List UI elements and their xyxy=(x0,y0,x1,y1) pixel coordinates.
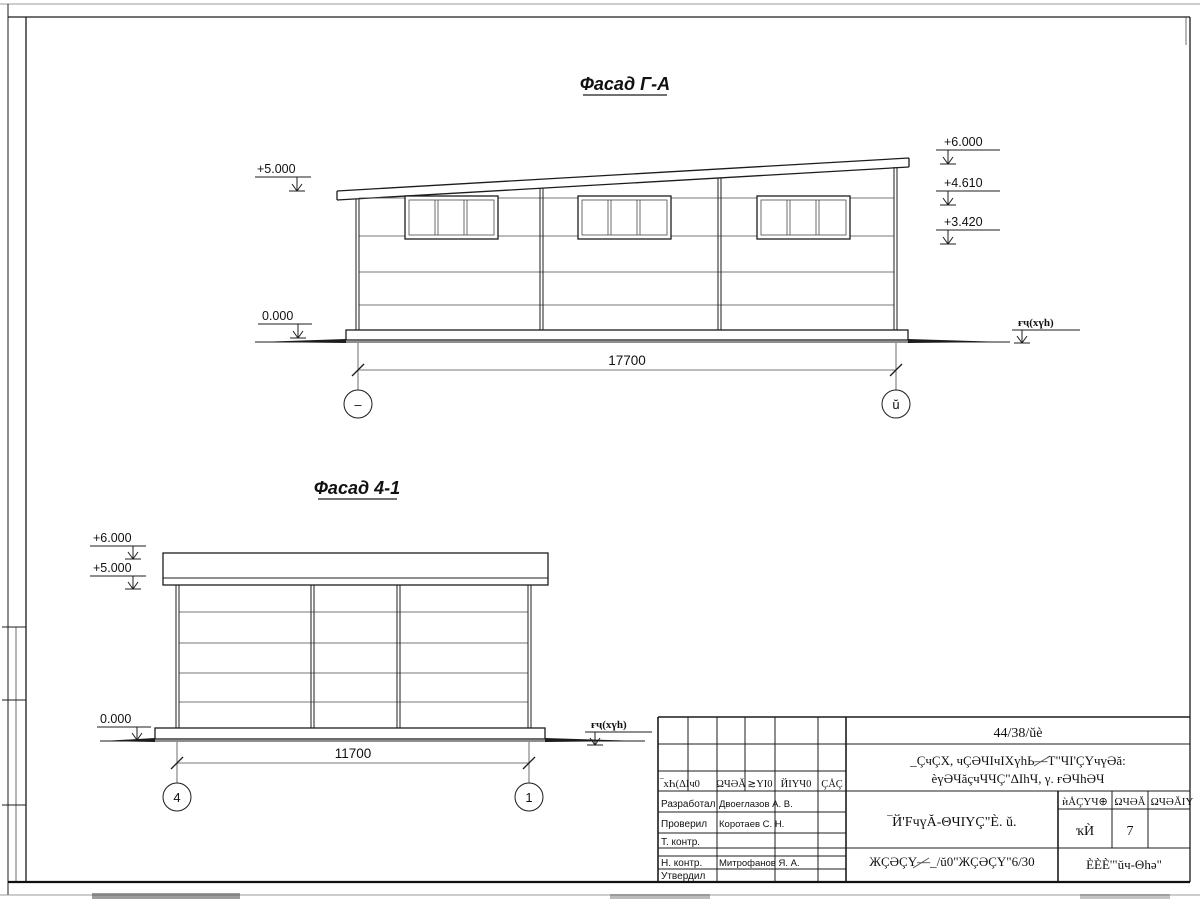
ground-level-mark: ғҷ(хүһ) xyxy=(1012,317,1080,343)
facade2-title: Фасад 4-1 xyxy=(314,478,400,498)
svg-text:+3.420: +3.420 xyxy=(944,215,983,229)
role-approved: Утвердил xyxy=(661,871,705,882)
role-checked: Проверил xyxy=(661,819,707,830)
window xyxy=(757,196,850,239)
svg-text:+5.000: +5.000 xyxy=(257,162,296,176)
svg-text:0.000: 0.000 xyxy=(100,712,131,726)
project-line2: ѐүӘЧăçчЧЧÇ"ΔIһЧ, γ. ғӘЧһӘЧ xyxy=(932,771,1105,786)
rev-col-list: ΩЧӘĂ xyxy=(716,778,746,790)
axis-label: ŭ xyxy=(892,397,899,412)
doc-number: 44/38/ŭè xyxy=(994,726,1043,741)
project-line1: _ÇчÇХ, чÇӘЧIчIХүһЬ—Т"ЧI'ÇҮчүӘă: xyxy=(909,753,1126,768)
plinth xyxy=(346,330,908,340)
name-ncontrol: Митрофанов Я. А. xyxy=(719,858,800,869)
dim-text: 17700 xyxy=(608,353,646,368)
svg-text:ғҷ(хүһ): ғҷ(хүһ) xyxy=(1018,317,1054,329)
rev-col-dok: ≳ΥI0 xyxy=(747,779,772,790)
elevation-mark: +3.420 xyxy=(936,215,1000,244)
title-block: 44/38/ŭè _ÇчÇХ, чÇӘЧIчIХүһЬ—Т"ЧI'ÇҮчүӘă:… xyxy=(658,717,1193,882)
stage-header: ѝÅÇҮЧ⊕ xyxy=(1062,796,1107,808)
elevation-mark: 0.000 xyxy=(258,309,312,338)
facade1-dimension: 17700 – ŭ xyxy=(344,343,910,418)
window xyxy=(405,196,498,239)
svg-text:+6.000: +6.000 xyxy=(93,531,132,545)
sheets-header: ΩЧӘĂIY xyxy=(1151,796,1194,808)
cad-canvas: Фасад Г-А xyxy=(0,0,1200,900)
axis-label: – xyxy=(354,397,362,412)
axis-label: 4 xyxy=(173,790,180,805)
elevation-mark: +6.000 xyxy=(90,531,146,559)
role-developed: Разработал xyxy=(661,798,716,810)
role-ncontrol: Н. контр. xyxy=(661,858,702,869)
svg-text:+5.000: +5.000 xyxy=(93,561,132,575)
facade1-drawing xyxy=(255,158,1010,343)
facade1-title: Фасад Г-А xyxy=(580,74,670,94)
elevation-mark: 0.000 xyxy=(97,712,151,740)
axis-label: 1 xyxy=(525,790,532,805)
rev-col-podp: ЙIΥЧ0 xyxy=(781,778,812,790)
company-name: ÈÈÈ'"ŭч-Θһә" xyxy=(1086,857,1162,872)
sheet-header: ΩЧӘĂ xyxy=(1114,796,1145,808)
elevation-mark: +4.610 xyxy=(936,176,1000,205)
plinth xyxy=(155,728,545,739)
name-checked: Коротаев С. Н. xyxy=(719,819,784,830)
svg-text:0.000: 0.000 xyxy=(262,309,293,323)
facade2-elevations: +6.000 +5.000 0.000 ғҷ(хүһ) xyxy=(90,531,652,745)
facade2-dimension: 11700 4 1 xyxy=(163,742,543,811)
print-artifact xyxy=(1080,894,1170,899)
drawing-sheet: Фасад Г-А xyxy=(0,0,1200,900)
drawing-title: ‾Й'FчүĂ-ΘЧIΥÇ"È. ŭ. xyxy=(887,813,1017,830)
drawing-code: ЖÇӘÇҮ—_/ŭ0"ЖÇӘÇҮ"6/30 xyxy=(869,854,1034,869)
role-tcontrol: Т. контр. xyxy=(661,837,700,848)
elevation-mark: +6.000 xyxy=(936,135,1000,164)
svg-text:ғҷ(хүһ): ғҷ(хүһ) xyxy=(591,719,627,731)
rev-col-data: ÇÅÇ xyxy=(821,778,843,790)
window xyxy=(578,196,671,239)
name-developed: Двоеглазов А. В. xyxy=(719,799,793,810)
print-artifact xyxy=(92,893,240,899)
print-artifact xyxy=(610,894,710,899)
svg-text:+6.000: +6.000 xyxy=(944,135,983,149)
elevation-mark: +5.000 xyxy=(255,162,311,191)
svg-text:+4.610: +4.610 xyxy=(944,176,983,190)
sheet-value: 7 xyxy=(1127,824,1134,839)
rev-col-izm: ‾хҺ(ΔIч0 xyxy=(659,778,700,790)
facade2-drawing xyxy=(100,553,645,742)
stage-value: ҡЍ xyxy=(1076,822,1094,839)
dim-text: 11700 xyxy=(335,746,372,761)
elevation-mark: +5.000 xyxy=(90,561,146,589)
